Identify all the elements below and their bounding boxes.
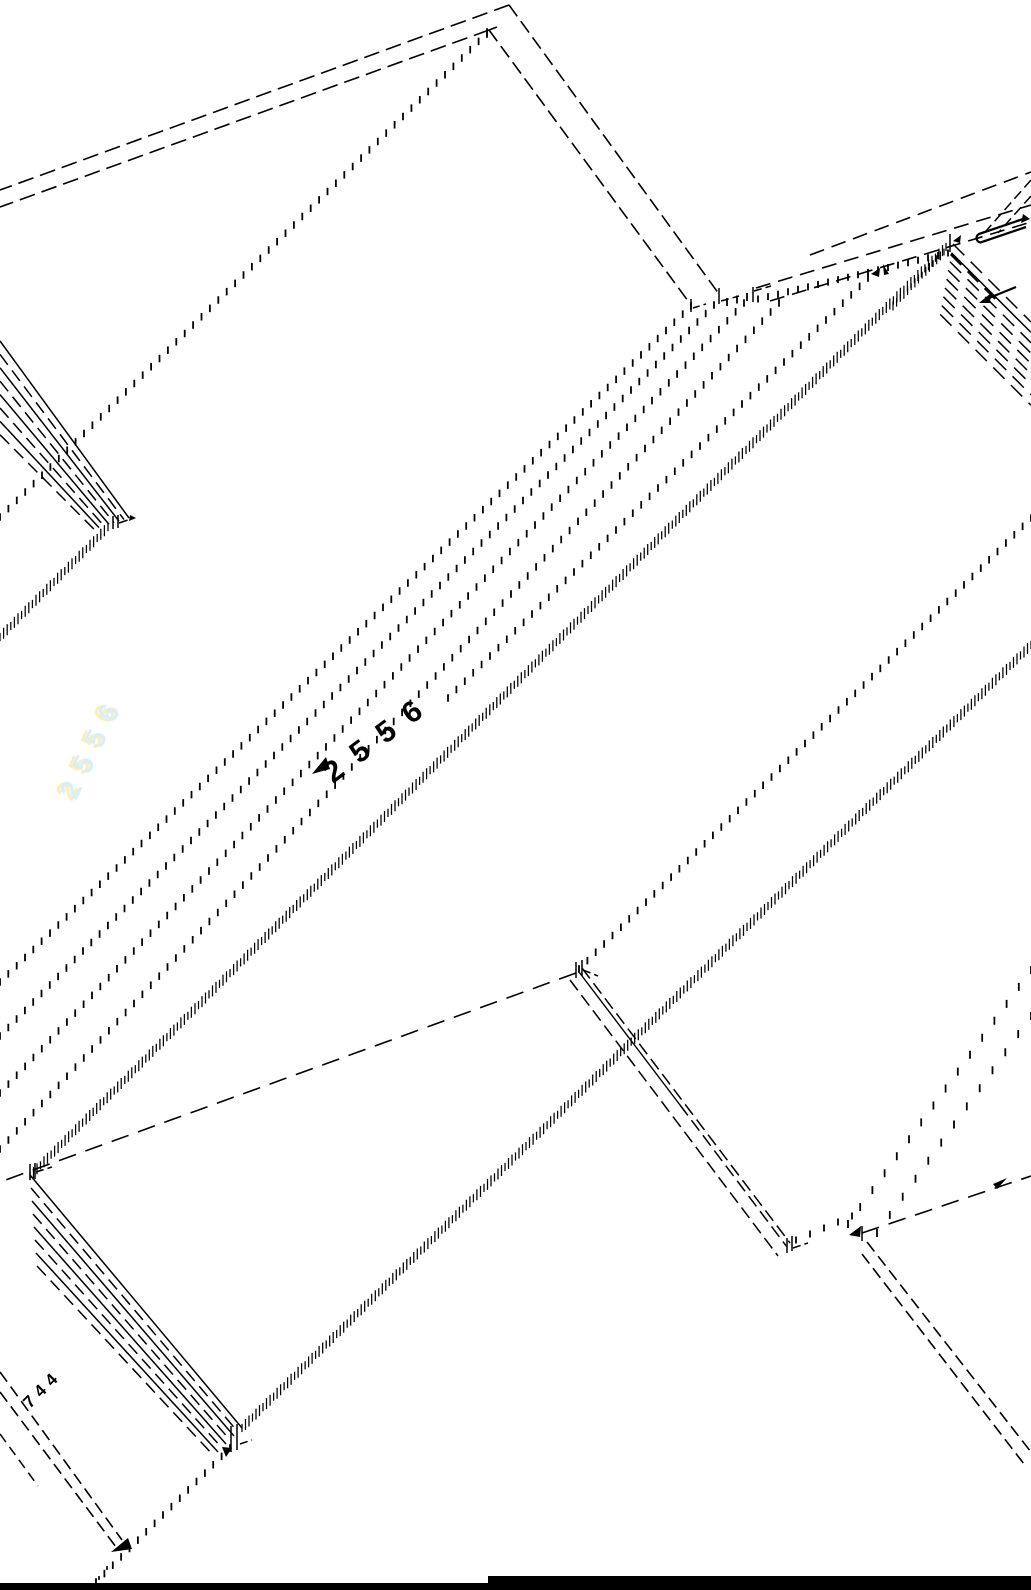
svg-text:744: 744 [19, 1366, 65, 1412]
